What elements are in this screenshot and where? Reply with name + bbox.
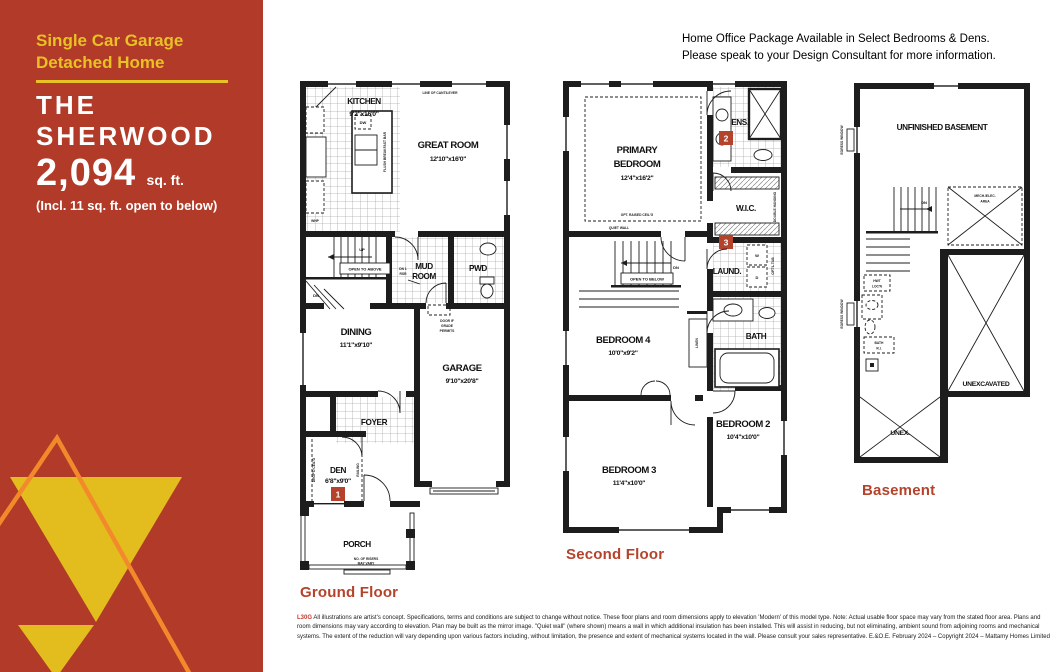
optl-tub-label: OPT'L TUB — [771, 257, 775, 275]
den-dims: 6'8"x9'0" — [325, 478, 351, 485]
bath-sink — [724, 304, 742, 316]
range — [306, 107, 324, 133]
svg-text:ROOM: ROOM — [412, 272, 436, 281]
garage-label: GARAGE — [442, 363, 481, 374]
square-footage-unit: sq. ft. — [147, 172, 184, 188]
basement-title: Basement — [862, 482, 935, 499]
quiet-wall-note: QUIET WALL — [609, 226, 629, 230]
svg-text:GRADE: GRADE — [441, 324, 454, 328]
dropd-ceiling-label: DROP'D CEIL'G — [312, 457, 316, 482]
ens-badge-number: 2 — [724, 134, 729, 144]
ens-label: ENS. — [731, 118, 749, 127]
double-hanging-label: DOUBLE HANGING — [773, 191, 777, 222]
cantilever-note: LINE OF CANTILEVER — [423, 91, 459, 95]
dining-dims: 11'1"x9'10" — [340, 342, 373, 349]
porch-rail-right — [410, 513, 414, 565]
primary-label1: PRIMARY — [617, 145, 659, 156]
home-office-note-line2: Please speak to your Design Consultant f… — [682, 48, 996, 65]
wic-shelf — [715, 223, 779, 235]
risers-note1: NO. OF RISERS — [354, 557, 379, 561]
linen-closet: LINEN — [689, 319, 707, 367]
home-type-tagline: Single Car Garage Detached Home — [36, 30, 183, 74]
dining-label: DINING — [341, 327, 372, 338]
den-badge-number: 1 — [336, 490, 341, 500]
porch: PORCH NO. OF RISERS MAY VARY — [300, 507, 415, 574]
bedroom2-label: BEDROOM 2 — [716, 419, 770, 430]
unexcavated-label: UNEXCAVATED — [963, 381, 1010, 388]
porch-post — [300, 507, 309, 516]
ensuite-sink — [716, 109, 728, 121]
basement-stairs: DN — [866, 187, 938, 271]
svg-text:LOC'N: LOC'N — [872, 285, 883, 289]
logo-triangle-small — [18, 625, 94, 672]
door-grade-note: DOOR IF GRADE PERMITS — [428, 305, 455, 333]
svg-text:MECH./ELEC.: MECH./ELEC. — [974, 194, 995, 198]
ground-floor-plan: DW FLUSH BREAKFAST BAR WHP UP DN OPEN TO… — [300, 81, 516, 577]
pwd-sink — [480, 243, 496, 255]
porch-rail-left — [301, 513, 305, 565]
foyer-label: FOYER — [361, 418, 388, 427]
model-name-line2: SHERWOOD — [36, 121, 216, 152]
fridge — [306, 137, 326, 177]
bedroom3-dims: 11'4"x10'0" — [613, 480, 646, 487]
laund-badge-number: 3 — [724, 238, 729, 248]
egress-window-label: EGRESS WINDOW — [840, 125, 844, 155]
tagline-line1: Single Car Garage — [36, 30, 183, 52]
wic-shelf — [715, 177, 779, 189]
disclaimer-text: All illustrations are artist's concept. … — [297, 615, 1050, 640]
dn-label: DN — [313, 293, 319, 298]
ground-stairs: UP DN OPEN TO ABOVE — [306, 237, 390, 309]
logo-triangle-large — [10, 477, 182, 622]
bedroom3-label: BEDROOM 3 — [602, 465, 656, 476]
unfinished-basement-label: UNFINISHED BASEMENT — [897, 123, 988, 132]
dishwasher-label: DW — [360, 120, 367, 125]
area-note: (Incl. 11 sq. ft. open to below) — [36, 198, 217, 213]
model-name: THE SHERWOOD — [36, 90, 216, 152]
bath-tub — [715, 349, 779, 387]
porch-label: PORCH — [343, 540, 371, 549]
bath-label: BATH — [746, 332, 767, 341]
bath-rough-in: BATH R.I. — [862, 295, 894, 371]
svg-text:PERMITS: PERMITS — [440, 329, 455, 333]
unexcavated-area: UNEXCAVATED — [948, 255, 1024, 391]
risers-note2: MAY VARY — [358, 562, 375, 566]
walk-in-closet: W.I.C. DOUBLE HANGING — [715, 177, 779, 235]
porch-post — [406, 529, 415, 538]
kitchen-island: DW FLUSH BREAKFAST BAR — [352, 111, 392, 193]
porch-post — [406, 561, 415, 570]
great-room-dims: 12'10"x16'0" — [430, 156, 466, 163]
disclaimer: L30G All illustrations are artist's conc… — [297, 614, 1052, 642]
laund-label: LAUND. — [713, 267, 742, 276]
ground-floor-title: Ground Floor — [300, 584, 398, 601]
open-to-below-label: OPEN TO BELOW — [630, 277, 664, 282]
pwd-label: PWD — [469, 264, 487, 273]
area-row: 2,094 sq. ft. — [36, 152, 184, 195]
second-floor-plan: PRIMARY BEDROOM 12'4"x16'2" OPT. RAISED … — [563, 81, 789, 541]
sidebar: Single Car Garage Detached Home THE SHER… — [0, 0, 263, 672]
egress-window-well — [847, 303, 854, 325]
pwd-toilet-bowl — [481, 284, 493, 298]
bedroom4-dims: 10'0"x9'2" — [608, 350, 637, 357]
dn-label: DN — [921, 200, 927, 205]
basement-plan: EGRESS WINDOW EGRESS WINDOW UNFINISHED B… — [836, 83, 1038, 477]
basement-walls — [854, 83, 1030, 463]
pantry — [306, 181, 324, 213]
egress-window-label2: EGRESS WINDOW — [840, 299, 844, 329]
home-office-note: Home Office Package Available in Select … — [682, 31, 996, 66]
unex-area: UNEX. — [860, 397, 940, 457]
gold-divider — [36, 80, 228, 83]
tagline-line2: Detached Home — [36, 52, 183, 74]
second-floor-title: Second Floor — [566, 546, 664, 563]
raised-ceiling-note: OPT. RAISED CEIL'G — [621, 213, 654, 217]
den-label: DEN — [330, 466, 347, 475]
model-name-line1: THE — [36, 90, 216, 121]
plan-code: L30G — [297, 615, 312, 621]
svg-text:HWT: HWT — [873, 279, 881, 283]
kitchen-label: KITCHEN — [347, 97, 381, 106]
whp-label: WHP — [311, 219, 319, 223]
mech-area: MECH./ELEC. AREA — [948, 187, 1022, 245]
bath-toilet — [759, 308, 775, 319]
dn-1-rsr-label1: DN 1 — [399, 267, 407, 271]
flush-breakfast-bar-label: FLUSH BREAKFAST BAR — [383, 131, 387, 172]
square-footage: 2,094 — [36, 152, 136, 194]
hwt-location: HWT LOC'N — [864, 275, 890, 291]
garage-door — [430, 488, 498, 494]
dn-1-rsr-label2: RSR — [400, 272, 408, 276]
kitchen-dims: 9'2"x16'0" — [349, 111, 378, 118]
kitchen-appliances: WHP — [306, 107, 326, 223]
washer-label: W — [755, 253, 759, 258]
up-label: UP — [359, 247, 365, 252]
porch-post — [300, 561, 309, 570]
bedroom2-dims: 10'4"x10'0" — [727, 434, 760, 441]
ensuite-toilet — [754, 150, 772, 161]
den-room: DROP'D CEIL'G RAILING DEN 6'8"x9'0" 1 — [312, 439, 362, 501]
porch-step — [309, 565, 406, 569]
linen-label: LINEN — [695, 337, 699, 348]
svg-text:AREA: AREA — [980, 200, 990, 204]
builder-logo — [0, 430, 263, 672]
home-office-note-line1: Home Office Package Available in Select … — [682, 31, 996, 48]
unex-label: UNEX. — [890, 430, 910, 437]
dn-label: DN — [673, 265, 679, 270]
primary-label2: BEDROOM — [614, 159, 661, 170]
svg-text:DOOR IF: DOOR IF — [440, 319, 454, 323]
pwd-toilet-tank — [480, 277, 494, 284]
open-to-above-label: OPEN TO ABOVE — [348, 267, 381, 272]
great-room-label: GREAT ROOM — [418, 140, 479, 151]
bedroom4-label: BEDROOM 4 — [596, 335, 651, 346]
primary-dims: 12'4"x16'2" — [621, 175, 654, 182]
svg-text:BATH: BATH — [875, 341, 885, 345]
svg-text:R.I.: R.I. — [876, 347, 881, 351]
ensuite-vanity — [713, 97, 731, 161]
primary-bedroom: PRIMARY BEDROOM 12'4"x16'2" OPT. RAISED … — [585, 97, 701, 230]
dryer-label: D — [756, 275, 759, 280]
railing-label: RAILING — [356, 463, 360, 477]
porch-step — [344, 570, 390, 574]
svg-text:MUD: MUD — [415, 262, 433, 271]
garage-dims: 9'10"x20'8" — [446, 378, 479, 385]
wic-label: W.I.C. — [736, 204, 756, 213]
egress-window-well — [847, 129, 854, 151]
